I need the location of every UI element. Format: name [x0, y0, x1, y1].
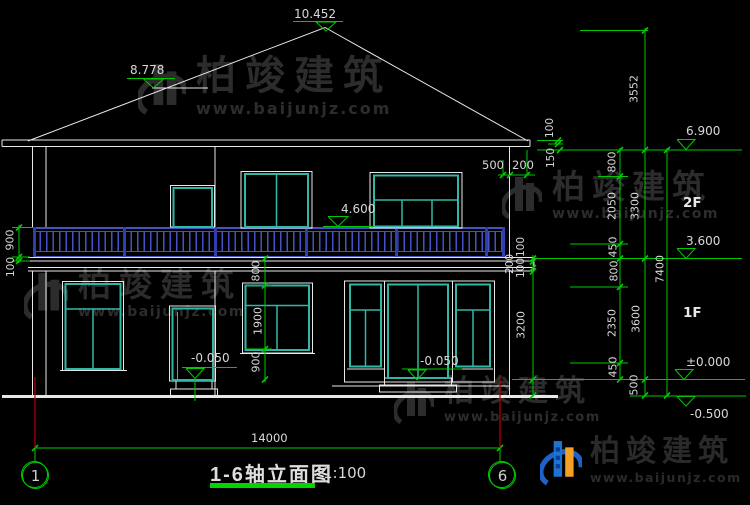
level-label-floor2: 3.600: [686, 234, 720, 248]
dim-balcony-rail-900: 900: [4, 230, 17, 251]
eave-band: [2, 140, 530, 147]
level-marker-floor2: [535, 249, 742, 259]
dimension-ticks: [16, 28, 670, 452]
dim-eave-detail-100: 100: [544, 118, 556, 138]
dim-inner-800b: 800: [608, 261, 621, 282]
dim-outer-7400: 7400: [654, 255, 667, 283]
level-marker-ground: [630, 396, 746, 406]
level-label-porch-right: -0.050: [420, 354, 459, 368]
balcony-slab-band: [28, 258, 534, 272]
dim-inner-2050: 2050: [606, 192, 619, 220]
level-label-zero: ±0.000: [686, 355, 730, 369]
cad-elevation-canvas: 柏竣建筑 www.baijunjz.com 柏竣建筑 www.baijunjz.…: [0, 0, 750, 505]
dim-balcony-slab-100: 100: [5, 257, 17, 277]
dim-balcony-edge-100b: 100: [515, 258, 527, 278]
door-surround: [171, 186, 215, 228]
level-label-eave: 6.900: [686, 124, 720, 138]
dim-middle-500: 500: [628, 375, 641, 396]
level-marker-peak: [293, 22, 343, 32]
dim-inner-800a: 800: [606, 152, 619, 173]
window-2f-right: [374, 176, 458, 227]
dim-middle-3600: 3600: [630, 305, 643, 333]
chains-right: [580, 28, 667, 397]
dim-window-chain-900: 900: [250, 352, 263, 373]
level-marker-ridge: [127, 79, 175, 89]
dim-story-3200: 3200: [515, 311, 528, 339]
level-label-peak: 10.452: [294, 7, 336, 21]
level-marker-zero: [540, 370, 745, 380]
dim-eave-detail-150: 150: [545, 148, 557, 168]
dim-total-width: 14000: [251, 431, 288, 445]
dim-inner-450b: 450: [607, 357, 620, 378]
window-frames: [66, 174, 491, 380]
title-underline: [210, 483, 315, 488]
level-label-ground: -0.500: [690, 407, 729, 421]
level-marker-eave: [537, 140, 742, 151]
building-lines: [2, 28, 558, 397]
dim-inner-2350: 2350: [606, 309, 619, 337]
dim-window-chain-1900: 1900: [252, 307, 265, 335]
dim-balcony-edge-100a: 100: [515, 237, 527, 257]
level-marker-balcony: [323, 217, 374, 227]
axis-bubble-1: 1: [22, 462, 49, 489]
sunroom-panel-right-mullions: [456, 310, 490, 366]
sunroom-panel-left-mullions: [350, 310, 381, 366]
level-label-balcony: 4.600: [341, 202, 375, 216]
level-label-ridge: 8.778: [130, 63, 164, 77]
window-2f-right-mullions: [374, 200, 458, 227]
dim-window-chain-800: 800: [250, 261, 263, 282]
dim-eave-overhang-500: 500: [482, 158, 504, 172]
entry-step: [176, 381, 212, 389]
level-label-porch-left: -0.050: [191, 351, 230, 365]
entry-door: [173, 309, 214, 381]
second-floor-walls: [33, 147, 510, 257]
axis-bubble-6: 6: [489, 462, 516, 489]
drawing-scale: 1:100: [323, 464, 366, 482]
window-1f-left-mullions: [66, 309, 121, 369]
door-2f: [174, 188, 213, 227]
dim-middle-3300: 3300: [629, 192, 642, 220]
dim-inner-450a: 450: [607, 237, 620, 258]
door-surround: [170, 306, 216, 381]
roof-slopes: [28, 28, 528, 142]
floor-label-1f: 1F: [683, 305, 702, 321]
floor-label-2f: 2F: [683, 195, 702, 211]
dim-eave-overhang-200: 200: [512, 158, 534, 172]
dim-middle-3552: 3552: [628, 75, 641, 103]
